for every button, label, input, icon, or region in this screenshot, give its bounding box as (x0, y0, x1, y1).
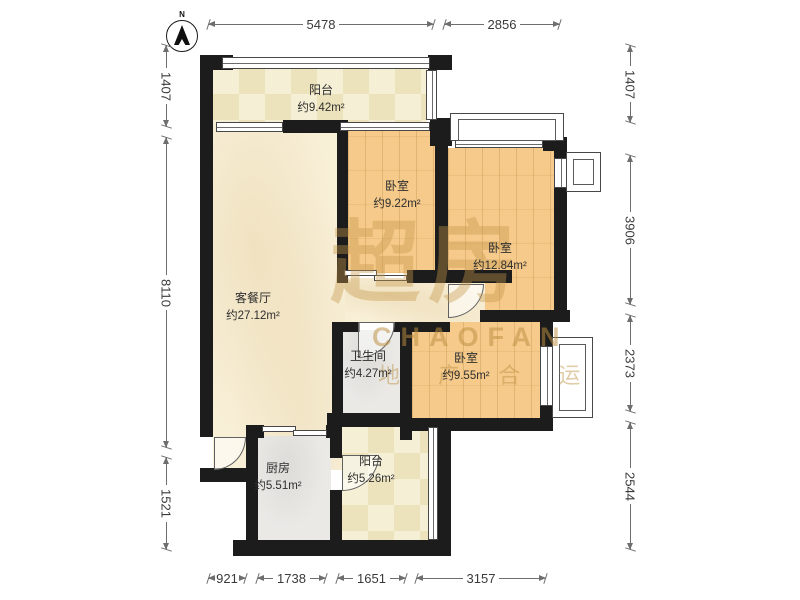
dimension-bottom-2: 1738 (257, 570, 326, 586)
wall-segment (400, 418, 552, 431)
north-arrow-notch (177, 39, 187, 48)
room-label-balcony-bottom: 阳台 约5.26m² (311, 453, 431, 488)
room-label-living: 客餐厅 约27.12m² (193, 290, 313, 325)
dimension-left-2: 8110 (158, 137, 174, 448)
dimension-bottom-1: 921 (208, 570, 246, 586)
room-label-balcony-top: 阳台 约9.42m² (261, 82, 381, 117)
wall-segment (428, 55, 452, 70)
dimension-top-1: 5478 (208, 16, 434, 32)
dimension-right-1: 1407 (622, 45, 638, 123)
room-name: 卧室 (488, 241, 512, 255)
room-area: 约27.12m² (226, 310, 280, 322)
room-area: 约5.51m² (254, 480, 301, 492)
room-name: 阳台 (309, 83, 333, 97)
floor-plan-canvas: N (0, 0, 800, 600)
room-area: 约5.26m² (347, 473, 394, 485)
wall-segment (480, 310, 570, 322)
room-label-bedroom-small: 卧室 约9.22m² (337, 178, 457, 213)
room-area: 约4.27m² (344, 368, 391, 380)
room-area: 约9.22m² (373, 198, 420, 210)
dimension-top-2: 2856 (444, 16, 560, 32)
wall-segment (233, 540, 451, 556)
room-name: 卧室 (385, 179, 409, 193)
bay-window-inner (559, 344, 586, 411)
room-label-bathroom: 卫生间 约4.27m² (308, 348, 428, 383)
sliding-door-leaf (374, 275, 407, 281)
dimension-right-2: 3906 (622, 155, 638, 305)
sliding-door-leaf (344, 270, 377, 276)
dimension-left-1: 1407 (158, 45, 174, 127)
dimension-bottom-3: 1651 (337, 570, 406, 586)
wall-segment (330, 490, 342, 540)
room-name: 客餐厅 (235, 291, 271, 305)
wall-segment (200, 55, 213, 437)
room-name: 厨房 (266, 461, 290, 475)
window (426, 70, 437, 120)
north-label: N (160, 10, 204, 20)
room-label-bedroom-large: 卧室 约12.84m² (440, 240, 560, 275)
wall-segment (438, 427, 451, 556)
room-name: 卫生间 (350, 349, 386, 363)
room-area: 约9.55m² (442, 370, 489, 382)
room-name: 卧室 (454, 351, 478, 365)
dimension-right-4: 2544 (622, 422, 638, 550)
window (340, 122, 430, 131)
bay-window-inner (458, 119, 556, 141)
room-area: 约9.42m² (297, 102, 344, 114)
bay-window-inner (573, 159, 594, 185)
window (222, 57, 430, 69)
sliding-door-leaf (293, 430, 327, 436)
sliding-door-leaf (262, 426, 296, 432)
wall-segment (283, 120, 343, 133)
dimension-left-3: 1521 (158, 457, 174, 550)
room-name: 阳台 (359, 454, 383, 468)
window (216, 122, 283, 132)
dimension-bottom-4: 3157 (416, 570, 546, 586)
room-area: 约12.84m² (473, 260, 527, 272)
dimension-right-3: 2373 (622, 315, 638, 412)
